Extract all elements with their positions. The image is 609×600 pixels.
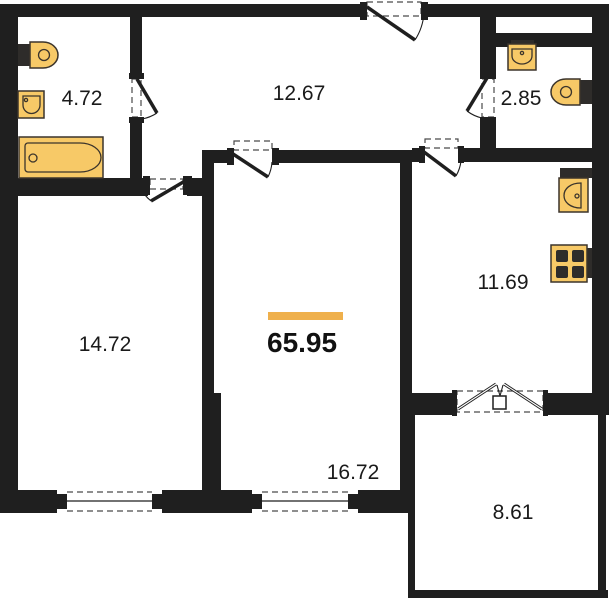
door-jamb bbox=[227, 148, 234, 165]
wall-bathroom-bottom bbox=[0, 178, 148, 196]
door-handle-icon bbox=[493, 396, 506, 409]
wall-top-right bbox=[425, 4, 609, 17]
door-jamb bbox=[480, 73, 496, 79]
wall-balcony-left bbox=[408, 415, 415, 598]
floor-plan-drawing: 4.72 12.67 2.85 11.69 14.72 16.72 8.61 6… bbox=[0, 0, 609, 600]
sink-bracket bbox=[560, 168, 592, 178]
wall-left bbox=[0, 4, 18, 513]
door-jamb bbox=[272, 148, 279, 165]
wall-bathroom-right-upper bbox=[130, 17, 142, 74]
toilet-bowl bbox=[551, 79, 580, 105]
bathroom-sink-icon bbox=[18, 91, 44, 118]
wall-top-left bbox=[0, 4, 363, 17]
room-label-hallway: 12.67 bbox=[273, 82, 326, 105]
toilet-icon bbox=[18, 42, 58, 68]
wall-room2-top-2 bbox=[278, 150, 412, 163]
room-label-kitchen: 11.69 bbox=[478, 271, 529, 294]
door-jamb bbox=[452, 390, 457, 416]
door-jamb bbox=[143, 176, 150, 195]
wall-wc-left-lower bbox=[480, 122, 496, 160]
wc-sink-icon bbox=[508, 40, 536, 70]
wall-right bbox=[592, 4, 609, 415]
wall-balcony-top-right bbox=[545, 393, 592, 415]
wall-bathroom-right-lower bbox=[130, 122, 142, 178]
stove-burner bbox=[572, 250, 584, 262]
door-jamb bbox=[543, 390, 548, 416]
wall-pilaster bbox=[214, 393, 221, 490]
room-label-room1: 14.72 bbox=[79, 333, 132, 356]
wall-bottom-2 bbox=[162, 490, 252, 513]
wall-balcony-right bbox=[598, 415, 606, 598]
door-jamb bbox=[458, 146, 464, 163]
bathtub-icon bbox=[19, 137, 103, 178]
door-jamb bbox=[183, 176, 192, 195]
room-label-bathroom: 4.72 bbox=[62, 87, 103, 110]
wall-rooms-divider bbox=[202, 150, 214, 490]
stove-icon bbox=[551, 245, 592, 282]
door-jamb bbox=[480, 117, 496, 123]
total-area-label: 65.95 bbox=[267, 327, 337, 358]
total-area-group: 65.95 bbox=[267, 312, 343, 358]
room-label-room2: 16.72 bbox=[327, 461, 380, 484]
floor-plan: 4.72 12.67 2.85 11.69 14.72 16.72 8.61 6… bbox=[0, 0, 609, 600]
wall-room2-top-1 bbox=[202, 150, 228, 163]
stove-burner bbox=[556, 250, 568, 262]
stove-burner bbox=[572, 266, 584, 278]
door-jamb bbox=[419, 146, 425, 163]
door-jamb bbox=[360, 2, 367, 20]
toilet-bowl bbox=[30, 42, 58, 68]
door-jamb bbox=[129, 73, 144, 79]
wall-balcony-bottom bbox=[408, 590, 608, 598]
door-jamb bbox=[129, 117, 144, 123]
total-area-accent-bar bbox=[268, 312, 343, 320]
room-label-wc: 2.85 bbox=[501, 87, 542, 110]
kitchen-sink-icon bbox=[559, 168, 592, 212]
wall-bottom-1 bbox=[0, 490, 57, 513]
wall-bottom-3 bbox=[358, 490, 412, 513]
stove-burner bbox=[556, 266, 568, 278]
wc-toilet-icon bbox=[551, 79, 592, 105]
wall-balcony-top-left bbox=[412, 393, 455, 415]
room-label-balcony: 8.61 bbox=[493, 501, 534, 524]
door-jamb bbox=[421, 2, 428, 20]
